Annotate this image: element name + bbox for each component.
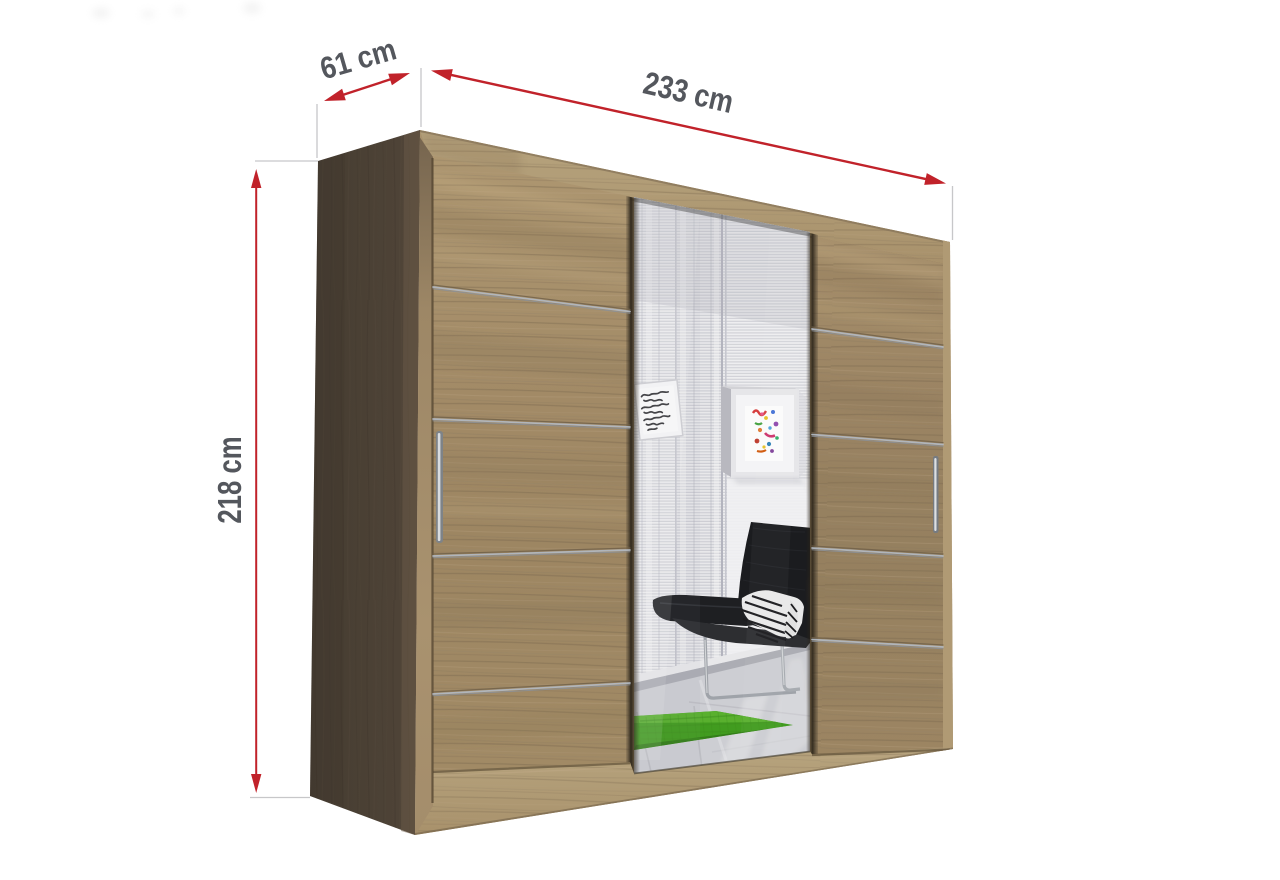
svg-text:218 cm: 218 cm xyxy=(212,436,249,523)
